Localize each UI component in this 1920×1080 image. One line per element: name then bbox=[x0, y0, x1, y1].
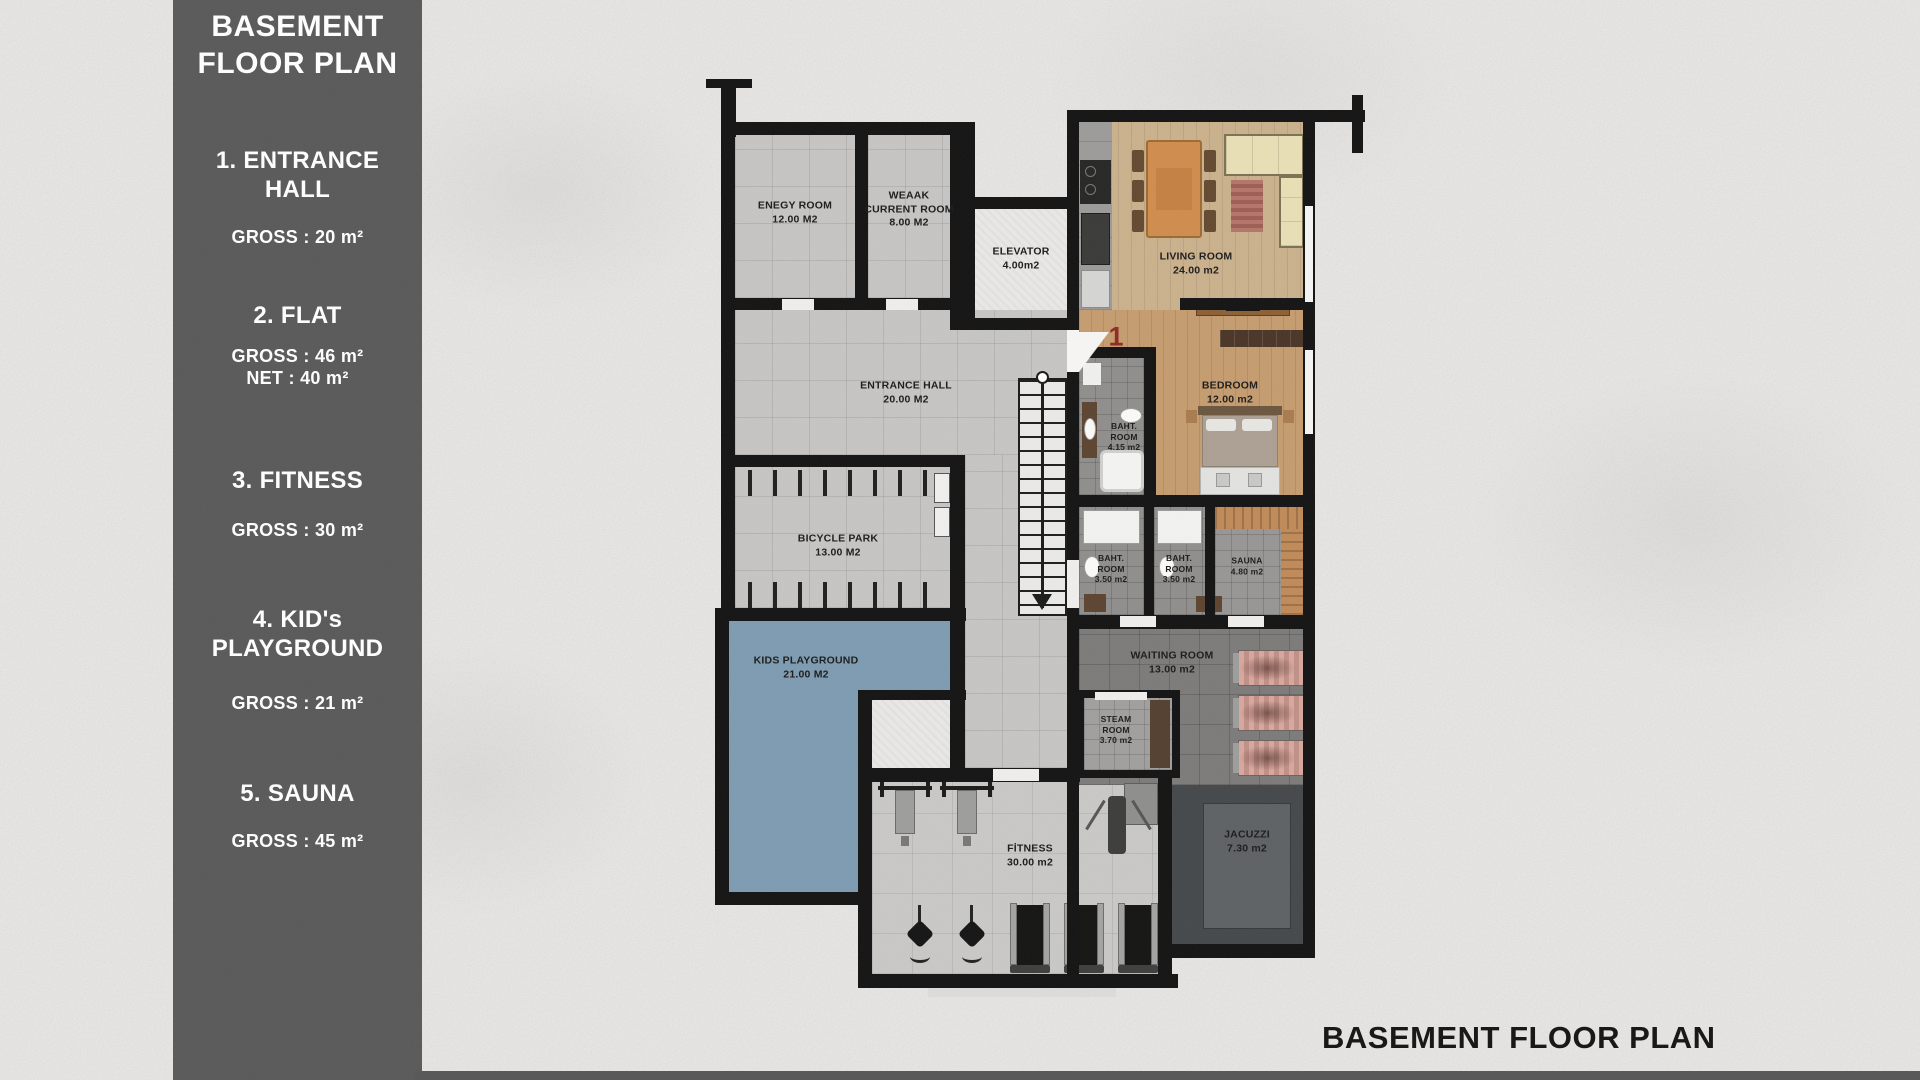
nightstand bbox=[1186, 410, 1197, 423]
lounge-chair bbox=[1238, 695, 1304, 731]
dining-chair bbox=[1132, 150, 1144, 172]
bike-rack-icon bbox=[923, 470, 927, 496]
room-name: ENEGY ROOM bbox=[749, 199, 841, 213]
wall bbox=[858, 768, 1080, 782]
wall bbox=[1067, 110, 1365, 122]
room-label-energy: ENEGY ROOM12.00 M2 bbox=[749, 199, 841, 226]
wall bbox=[721, 298, 975, 310]
room-area: 12.00 M2 bbox=[749, 213, 841, 227]
bathtub bbox=[1100, 450, 1144, 492]
floor-plan: ENEGY ROOM12.00 M2 WEAAK CURRENT ROOM8.0… bbox=[0, 0, 1920, 1080]
room-label-sauna: SAUNA4.80 m2 bbox=[1217, 555, 1277, 576]
bike-rack-icon bbox=[873, 470, 877, 496]
stove bbox=[1080, 160, 1111, 204]
floor-small-room bbox=[872, 700, 950, 768]
sofa-vertical bbox=[1279, 176, 1304, 248]
room-label-bath1: BAHT. ROOM4.15 m2 bbox=[1101, 421, 1147, 453]
bike-rack-icon bbox=[773, 470, 777, 496]
nightstand bbox=[1283, 410, 1294, 423]
workout-bench bbox=[895, 790, 915, 834]
pillow bbox=[1206, 419, 1236, 431]
room-area: 7.30 m2 bbox=[1207, 842, 1287, 856]
treadmill bbox=[1010, 903, 1050, 973]
stool bbox=[1248, 473, 1262, 487]
jacuzzi-tub bbox=[1203, 803, 1291, 929]
door-opening bbox=[1067, 560, 1079, 608]
sofa-horizontal bbox=[1224, 134, 1304, 176]
dining-chair bbox=[1204, 150, 1216, 172]
cable-machine-seat bbox=[1108, 796, 1126, 854]
lounge-chair bbox=[1238, 650, 1304, 686]
room-area: 3.50 m2 bbox=[1156, 574, 1202, 585]
bike-rack-icon bbox=[748, 470, 752, 496]
room-name: JACUZZI bbox=[1207, 828, 1287, 842]
room-area: 13.00 M2 bbox=[783, 546, 893, 560]
room-name: ENTRANCE HALL bbox=[836, 379, 976, 393]
room-name: FİTNESS bbox=[990, 842, 1070, 856]
bike-locker bbox=[934, 507, 950, 537]
cable-machine-frame bbox=[1124, 783, 1158, 825]
room-area: 4.80 m2 bbox=[1217, 566, 1277, 577]
entrance-mat bbox=[928, 988, 1116, 997]
bike-locker bbox=[934, 473, 950, 503]
dishwasher bbox=[1081, 270, 1110, 308]
pillow bbox=[1242, 419, 1272, 431]
room-label-bath2: BAHT. ROOM3.50 m2 bbox=[1087, 553, 1135, 585]
wall bbox=[721, 122, 735, 621]
workout-bench bbox=[957, 790, 977, 834]
punch-bag-base bbox=[910, 950, 930, 963]
wardrobe bbox=[1220, 330, 1303, 347]
room-name: BAHT. ROOM bbox=[1101, 421, 1147, 442]
bike-rack-icon bbox=[923, 582, 927, 608]
bed-bench bbox=[1200, 467, 1280, 495]
door-opening bbox=[1228, 616, 1264, 627]
room-name: STEAM ROOM bbox=[1088, 714, 1144, 735]
lounge-chair bbox=[1238, 740, 1304, 776]
room-area: 20.00 M2 bbox=[836, 393, 976, 407]
dining-chair bbox=[1204, 210, 1216, 232]
room-label-bicycle: BICYCLE PARK13.00 M2 bbox=[783, 532, 893, 559]
staircase-direction-arrow bbox=[1032, 594, 1052, 610]
wall bbox=[1158, 944, 1315, 958]
wall bbox=[975, 197, 1067, 209]
room-name: LIVING ROOM bbox=[1141, 250, 1251, 264]
shower-tray bbox=[1083, 510, 1140, 544]
room-label-elevator: ELEVATOR4.00m2 bbox=[986, 245, 1056, 272]
room-label-waiting: WAITING ROOM13.00 m2 bbox=[1107, 649, 1237, 676]
bike-rack-icon bbox=[848, 582, 852, 608]
room-area: 3.50 m2 bbox=[1087, 574, 1135, 585]
window bbox=[1305, 206, 1313, 302]
wall bbox=[715, 892, 872, 905]
bench-leg bbox=[963, 836, 971, 846]
bike-rack-icon bbox=[798, 470, 802, 496]
wall bbox=[1352, 95, 1363, 153]
bottom-bar bbox=[415, 1071, 1920, 1080]
fridge bbox=[1081, 213, 1110, 265]
room-name: WAITING ROOM bbox=[1107, 649, 1237, 663]
door-opening bbox=[886, 299, 918, 310]
bike-rack-icon bbox=[773, 582, 777, 608]
door-swing bbox=[1079, 332, 1109, 372]
stool bbox=[1216, 473, 1230, 487]
staircase-rail bbox=[1041, 380, 1044, 608]
room-name: BAHT. ROOM bbox=[1156, 553, 1202, 574]
dining-chair bbox=[1132, 210, 1144, 232]
bike-rack-icon bbox=[898, 470, 902, 496]
room-label-fitness: FİTNESS30.00 m2 bbox=[990, 842, 1070, 869]
steam-room-door bbox=[1150, 700, 1170, 768]
bed-headboard bbox=[1198, 406, 1282, 415]
punch-bag-base bbox=[962, 950, 982, 963]
room-area: 3.70 m2 bbox=[1088, 735, 1144, 746]
dining-chair bbox=[1132, 180, 1144, 202]
bike-rack-icon bbox=[873, 582, 877, 608]
bike-rack-icon bbox=[823, 470, 827, 496]
bike-rack-icon bbox=[823, 582, 827, 608]
room-label-steam: STEAM ROOM3.70 m2 bbox=[1088, 714, 1144, 746]
bench-leg bbox=[901, 836, 909, 846]
room-name: BEDROOM bbox=[1180, 379, 1280, 393]
room-area: 8.00 M2 bbox=[864, 217, 954, 231]
door-opening bbox=[993, 769, 1039, 781]
room-area: 24.00 m2 bbox=[1141, 264, 1251, 278]
dining-table-center bbox=[1156, 168, 1192, 210]
footer-plan-title: BASEMENT FLOOR PLAN bbox=[1322, 1020, 1722, 1056]
room-label-living: LIVING ROOM24.00 m2 bbox=[1141, 250, 1251, 277]
window bbox=[1305, 350, 1313, 434]
wall bbox=[721, 455, 965, 467]
wall bbox=[1067, 495, 1315, 507]
wall bbox=[1067, 615, 1315, 629]
bike-rack-icon bbox=[798, 582, 802, 608]
room-area: 13.00 m2 bbox=[1107, 663, 1237, 677]
wall bbox=[950, 318, 1067, 330]
stove-burner bbox=[1085, 166, 1096, 177]
dining-chair bbox=[1204, 180, 1216, 202]
treadmill bbox=[1118, 903, 1158, 973]
room-area: 21.00 M2 bbox=[741, 668, 871, 682]
bike-rack-icon bbox=[898, 582, 902, 608]
room-label-kids: KIDS PLAYGROUND21.00 M2 bbox=[741, 654, 871, 681]
staircase-start-marker bbox=[1036, 371, 1049, 384]
room-name: ELEVATOR bbox=[986, 245, 1056, 259]
flat-door-opening bbox=[1067, 330, 1079, 372]
door-opening bbox=[1120, 616, 1156, 627]
wall bbox=[858, 690, 872, 988]
bath2-vanity bbox=[1084, 594, 1106, 612]
wall bbox=[858, 974, 1178, 988]
room-name: WEAAK CURRENT ROOM bbox=[864, 190, 954, 217]
wall bbox=[715, 608, 966, 621]
wall bbox=[1180, 298, 1315, 310]
room-name: SAUNA bbox=[1217, 555, 1277, 566]
room-area: 4.00m2 bbox=[986, 259, 1056, 273]
room-area: 30.00 m2 bbox=[990, 856, 1070, 870]
wall bbox=[715, 608, 729, 905]
wall bbox=[1144, 507, 1154, 619]
room-name: KIDS PLAYGROUND bbox=[741, 654, 871, 668]
shower-tray bbox=[1157, 510, 1202, 544]
room-label-jacuzzi: JACUZZI7.30 m2 bbox=[1207, 828, 1287, 855]
stove-burner bbox=[1085, 184, 1096, 195]
room-label-bath3: BAHT. ROOM3.50 m2 bbox=[1156, 553, 1202, 585]
rug bbox=[1231, 180, 1263, 232]
room-label-entrance: ENTRANCE HALL20.00 M2 bbox=[836, 379, 976, 406]
bike-rack-icon bbox=[748, 582, 752, 608]
room-label-weak-current: WEAAK CURRENT ROOM8.00 M2 bbox=[864, 190, 954, 231]
page: BASEMENT FLOOR PLAN 1. ENTRANCE HALL GRO… bbox=[0, 0, 1920, 1080]
wall bbox=[858, 690, 966, 700]
room-area: 12.00 m2 bbox=[1180, 393, 1280, 407]
room-name: BAHT. ROOM bbox=[1087, 553, 1135, 574]
door-opening bbox=[1095, 692, 1147, 700]
room-area: 4.15 m2 bbox=[1101, 442, 1147, 453]
wall bbox=[721, 122, 975, 135]
sink bbox=[1084, 418, 1096, 440]
bike-rack-icon bbox=[848, 470, 852, 496]
door-opening bbox=[782, 299, 814, 310]
room-label-bedroom: BEDROOM12.00 m2 bbox=[1180, 379, 1280, 406]
room-name: BICYCLE PARK bbox=[783, 532, 893, 546]
wall bbox=[1205, 507, 1215, 619]
sauna-wood-bench-right bbox=[1281, 529, 1303, 615]
flat-number: 1 bbox=[1108, 322, 1123, 353]
